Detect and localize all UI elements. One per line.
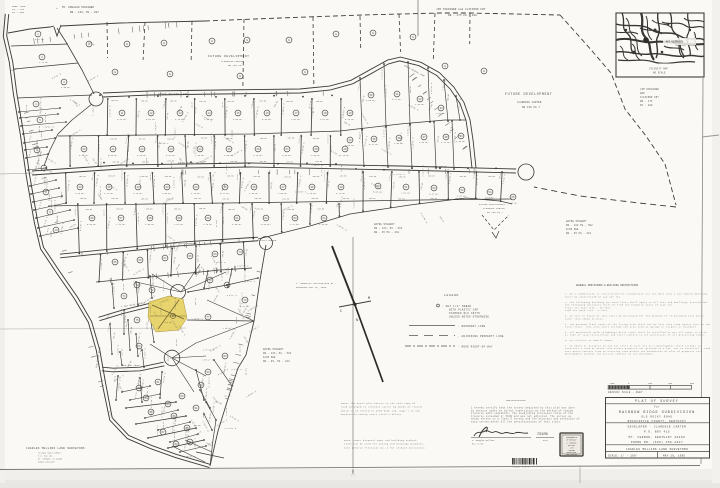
svg-text:lines can be used for zoning a: lines can be used for zoning and drainag… bbox=[344, 443, 425, 446]
svg-text:S 89*54' W: S 89*54' W bbox=[118, 344, 120, 355]
svg-text:69: 69 bbox=[214, 252, 217, 256]
svg-text:142.65: 142.65 bbox=[197, 266, 200, 274]
svg-text:120.00: 120.00 bbox=[50, 230, 53, 238]
svg-text:- SET 1/2" REBAR: - SET 1/2" REBAR bbox=[442, 304, 471, 308]
svg-text:15: 15 bbox=[237, 111, 240, 115]
svg-text:26: 26 bbox=[257, 147, 260, 151]
svg-text:71: 71 bbox=[123, 294, 126, 298]
svg-text:PG - 200: PG - 200 bbox=[640, 104, 653, 107]
svg-text:S 30*42' E: S 30*42' E bbox=[174, 297, 177, 309]
svg-text:120.00: 120.00 bbox=[127, 144, 130, 152]
svg-text:S 89*54' W: S 89*54' W bbox=[237, 264, 249, 267]
svg-text:105.00: 105.00 bbox=[259, 160, 267, 163]
svg-text:ALSO SEE: ALSO SEE bbox=[263, 356, 276, 359]
svg-text:105.00: 105.00 bbox=[398, 197, 406, 200]
svg-text:DB - 95 PG - 218: DB - 95 PG - 218 bbox=[566, 232, 592, 235]
svg-text:105.00: 105.00 bbox=[199, 160, 207, 163]
svg-text:S 8*15' W: S 8*15' W bbox=[100, 259, 103, 270]
svg-text:CITY LIMIT: CITY LIMIT bbox=[676, 45, 686, 47]
svg-text:142.65: 142.65 bbox=[235, 317, 238, 325]
svg-text:S 30*42' E: S 30*42' E bbox=[312, 164, 324, 167]
svg-text:60: 60 bbox=[207, 216, 210, 220]
svg-text:19: 19 bbox=[349, 111, 352, 115]
svg-text:120.00: 120.00 bbox=[222, 102, 224, 108]
svg-text:200: 200 bbox=[668, 382, 673, 385]
svg-text:ALSO SEE: ALSO SEE bbox=[566, 228, 579, 231]
svg-text:0.77 AC.: 0.77 AC. bbox=[35, 38, 45, 41]
svg-text:N 5*18' E: N 5*18' E bbox=[99, 157, 102, 168]
svg-text:105.00: 105.00 bbox=[85, 208, 93, 211]
svg-text:- ROAD RIGHT-OF-WAY: - ROAD RIGHT-OF-WAY bbox=[458, 346, 493, 349]
svg-text:GRAPHIC SCALE - FEET: GRAPHIC SCALE - FEET bbox=[608, 391, 643, 394]
svg-text:105.00: 105.00 bbox=[369, 175, 377, 178]
svg-text:4.29 AC.: 4.29 AC. bbox=[253, 154, 263, 157]
svg-text:MAY 19, 1995: MAY 19, 1995 bbox=[663, 455, 685, 458]
svg-text:S 45*30' E: S 45*30' E bbox=[385, 84, 388, 96]
svg-text:Side Set Back Line - 8 feet: Side Set Back Line - 8 feet bbox=[565, 309, 608, 312]
svg-text:5.63 AC.: 5.63 AC. bbox=[108, 154, 118, 157]
svg-text:4.49 AC.: 4.49 AC. bbox=[319, 223, 329, 226]
svg-text:105.00: 105.00 bbox=[287, 208, 295, 211]
svg-text:NOTE: The exact plat herein i: NOTE: The exact plat herein is the sole … bbox=[341, 402, 416, 405]
svg-text:RAINBOW RIDGE SUBDIVISION: RAINBOW RIDGE SUBDIVISION bbox=[619, 411, 695, 415]
svg-text:4.78 AC.: 4.78 AC. bbox=[133, 192, 143, 195]
svg-text:65: 65 bbox=[114, 260, 117, 264]
svg-text:7/21/95: 7/21/95 bbox=[537, 432, 548, 436]
svg-text:N 12*40' W: N 12*40' W bbox=[98, 140, 101, 152]
svg-text:105.00: 105.00 bbox=[282, 197, 290, 200]
svg-text:3.74 AC.: 3.74 AC. bbox=[336, 192, 346, 195]
svg-text:5.77 AC.: 5.77 AC. bbox=[369, 143, 379, 146]
svg-text:23: 23 bbox=[170, 147, 173, 151]
svg-text:S 30*42' E: S 30*42' E bbox=[163, 204, 165, 214]
svg-text:CLARENCE CARTER: CLARENCE CARTER bbox=[483, 207, 505, 210]
svg-text:DB - 163, PG - 502: DB - 163, PG - 502 bbox=[263, 352, 292, 355]
svg-text:105.00: 105.00 bbox=[230, 160, 238, 163]
svg-text:other than shown on plat.: other than shown on plat. bbox=[565, 317, 605, 320]
svg-text:2.84 AC.: 2.84 AC. bbox=[401, 192, 411, 195]
svg-text:3.88 AC.: 3.88 AC. bbox=[137, 154, 147, 157]
svg-text:N 5*18' E: N 5*18' E bbox=[327, 134, 329, 143]
svg-text:1.30 AC.: 1.30 AC. bbox=[145, 223, 155, 226]
svg-text:105.00: 105.00 bbox=[141, 175, 149, 178]
svg-text:46641 76674: 46641 76674 bbox=[513, 466, 530, 469]
svg-text:5.20 AC.: 5.20 AC. bbox=[262, 118, 272, 121]
svg-text:UNLESS NOTED OTHERWISE: UNLESS NOTED OTHERWISE bbox=[449, 316, 489, 319]
svg-text:G: G bbox=[169, 72, 171, 76]
svg-text:68: 68 bbox=[189, 254, 192, 258]
svg-text:10: 10 bbox=[55, 228, 58, 232]
svg-text:S 45*30' E: S 45*30' E bbox=[109, 105, 112, 117]
svg-text:38: 38 bbox=[445, 135, 448, 139]
svg-text:120.00: 120.00 bbox=[38, 125, 41, 133]
svg-text:63: 63 bbox=[294, 216, 297, 220]
svg-text:47: 47 bbox=[282, 185, 285, 189]
svg-text:46: 46 bbox=[253, 185, 256, 189]
svg-text:5.90 AC.: 5.90 AC. bbox=[373, 191, 383, 194]
svg-text:105.00: 105.00 bbox=[227, 100, 235, 103]
svg-text:84: 84 bbox=[224, 354, 227, 358]
svg-text:165.00: 165.00 bbox=[152, 277, 155, 285]
svg-text:105.00: 105.00 bbox=[110, 137, 118, 140]
svg-text:G: G bbox=[372, 31, 374, 35]
svg-text:S 45*30' E: S 45*30' E bbox=[173, 176, 176, 188]
svg-text:S 89*54' W: S 89*54' W bbox=[408, 125, 410, 136]
svg-text:91: 91 bbox=[195, 406, 198, 410]
svg-text:S 63*05' E: S 63*05' E bbox=[192, 318, 204, 321]
svg-text:N 77*20' E: N 77*20' E bbox=[46, 178, 49, 190]
svg-text:- BOUNDARY LINE: - BOUNDARY LINE bbox=[458, 325, 486, 328]
svg-text:1.79 AC.: 1.79 AC. bbox=[203, 223, 213, 226]
svg-text:P.O. BOX 415: P.O. BOX 415 bbox=[644, 431, 670, 434]
svg-text:G: G bbox=[114, 70, 116, 74]
svg-text:1.29 AC.: 1.29 AC. bbox=[307, 192, 317, 195]
svg-text:DB 139 PG 7: DB 139 PG 7 bbox=[522, 106, 540, 109]
svg-text:N 77*20' E: N 77*20' E bbox=[324, 170, 326, 180]
svg-text:208.75: 208.75 bbox=[197, 254, 200, 262]
svg-text:35: 35 bbox=[373, 137, 376, 141]
svg-text:3.80 AC.: 3.80 AC. bbox=[366, 99, 376, 102]
svg-text:S 89*54' W: S 89*54' W bbox=[422, 164, 425, 176]
svg-text:165.00: 165.00 bbox=[409, 85, 412, 93]
svg-text:N 12*40' W: N 12*40' W bbox=[382, 68, 384, 79]
svg-text:WAYNE STEWART: WAYNE STEWART bbox=[566, 220, 587, 223]
svg-text:1.52 AC.: 1.52 AC. bbox=[291, 118, 301, 121]
svg-text:N 12*40' W: N 12*40' W bbox=[239, 344, 242, 356]
svg-text:N 5*18' E: N 5*18' E bbox=[208, 377, 211, 388]
svg-text:105.00: 105.00 bbox=[165, 175, 173, 178]
svg-text:S 8*15' W: S 8*15' W bbox=[137, 282, 140, 293]
svg-text:G: G bbox=[246, 38, 248, 42]
svg-text:105.00: 105.00 bbox=[287, 137, 295, 140]
svg-text:105.00: 105.00 bbox=[254, 197, 262, 200]
svg-text:1.71 AC.: 1.71 AC. bbox=[39, 61, 49, 64]
svg-text:3.86 AC.: 3.86 AC. bbox=[282, 154, 292, 157]
svg-text:DB - 175 PG - 200: DB - 175 PG - 200 bbox=[448, 14, 477, 17]
svg-text:52: 52 bbox=[433, 186, 436, 190]
svg-text:64: 64 bbox=[323, 216, 326, 220]
svg-text:CHARLES MULLINS LAND SURVEYORS: CHARLES MULLINS LAND SURVEYORS bbox=[626, 448, 688, 451]
svg-text:5.59 AC.: 5.59 AC. bbox=[345, 144, 355, 147]
svg-text:N 5*18' E: N 5*18' E bbox=[232, 368, 243, 371]
svg-text:CLIFFORD FRY: CLIFFORD FRY bbox=[640, 96, 659, 99]
svg-text:DB - 163 PG - 502: DB - 163 PG - 502 bbox=[566, 224, 593, 227]
svg-text:S 45*30' E: S 45*30' E bbox=[411, 136, 414, 148]
svg-text:which is of record in Deed Boo: which is of record in Deed Book 139, pag… bbox=[341, 409, 421, 412]
svg-text:59: 59 bbox=[178, 216, 181, 220]
svg-text:N 5*18' E: N 5*18' E bbox=[227, 294, 238, 297]
svg-text:GENERAL PROVISIONS & BUILDING: GENERAL PROVISIONS & BUILDING RESTRICTIO… bbox=[576, 284, 639, 287]
svg-text:ROCKCASTLE COUNTY, KENTUCKY: ROCKCASTLE COUNTY, KENTUCKY bbox=[628, 420, 687, 423]
svg-text:(606) 256-2647: (606) 256-2647 bbox=[38, 461, 56, 464]
svg-text:142.65: 142.65 bbox=[26, 105, 28, 111]
svg-text:G: G bbox=[211, 39, 213, 43]
svg-text:S 30*42' E: S 30*42' E bbox=[184, 455, 196, 458]
svg-text:N 77*20' E: N 77*20' E bbox=[162, 280, 165, 292]
svg-text:4.33 AC.: 4.33 AC. bbox=[456, 140, 466, 143]
svg-text:33: 33 bbox=[440, 106, 443, 110]
svg-text:2.98 AC.: 2.98 AC. bbox=[162, 192, 172, 195]
svg-text:S 63*05' E: S 63*05' E bbox=[166, 353, 169, 365]
svg-text:S 89*54' W: S 89*54' W bbox=[154, 122, 157, 134]
svg-text:S 63*05' E: S 63*05' E bbox=[113, 282, 116, 294]
svg-text:77: 77 bbox=[207, 315, 210, 319]
svg-text:4.30 AC.: 4.30 AC. bbox=[61, 86, 71, 89]
svg-text:2.88 AC.: 2.88 AC. bbox=[419, 141, 429, 144]
svg-text:G: G bbox=[126, 42, 128, 46]
svg-text:S 8*15' W: S 8*15' W bbox=[149, 303, 152, 314]
svg-text:105.00: 105.00 bbox=[166, 197, 174, 200]
svg-text:S 30*42' E: S 30*42' E bbox=[194, 437, 197, 449]
svg-text:72: 72 bbox=[151, 288, 154, 292]
svg-text:105.00: 105.00 bbox=[199, 207, 207, 210]
svg-text:N 77*20' E: N 77*20' E bbox=[153, 175, 156, 187]
svg-text:105.00: 105.00 bbox=[369, 197, 377, 200]
svg-text:N: N bbox=[356, 319, 358, 323]
svg-text:94: 94 bbox=[167, 402, 170, 406]
svg-text:208.75: 208.75 bbox=[150, 174, 152, 180]
svg-text:N 77*20' E: N 77*20' E bbox=[150, 396, 153, 408]
svg-text:N 12*40' W: N 12*40' W bbox=[225, 427, 237, 430]
svg-text:51: 51 bbox=[405, 185, 408, 189]
svg-text:for: for bbox=[654, 406, 660, 409]
svg-text:PLAT OF SURVEY: PLAT OF SURVEY bbox=[635, 400, 679, 404]
svg-text:56: 56 bbox=[91, 216, 94, 220]
svg-text:M: M bbox=[368, 297, 370, 301]
svg-text:NOTE: Sewer disposal maps and: NOTE: Sewer disposal maps and building s… bbox=[344, 439, 417, 442]
svg-text:3.92 AC.: 3.92 AC. bbox=[166, 154, 176, 157]
svg-text:C: C bbox=[340, 310, 342, 314]
svg-text:S 30*42' E: S 30*42' E bbox=[430, 82, 433, 94]
svg-text:54: 54 bbox=[489, 190, 492, 194]
svg-text:shall be constructed on any on: shall be constructed on any one lot. bbox=[565, 295, 622, 298]
svg-text:61: 61 bbox=[236, 216, 239, 220]
svg-text:105.00: 105.00 bbox=[430, 197, 438, 200]
svg-text:WAYNE STEWART: WAYNE STEWART bbox=[374, 223, 395, 226]
svg-text:S 63*05' E: S 63*05' E bbox=[225, 403, 228, 415]
svg-text:G: G bbox=[239, 74, 241, 78]
svg-text:LEGEND: LEGEND bbox=[444, 294, 459, 297]
svg-text:105.00: 105.00 bbox=[112, 160, 120, 163]
svg-text:N 5*18' E: N 5*18' E bbox=[159, 304, 162, 315]
svg-text:- ADJOINING PROPERTY LINE: - ADJOINING PROPERTY LINE bbox=[458, 335, 504, 338]
svg-text:165.00: 165.00 bbox=[145, 322, 148, 330]
svg-text:142.65: 142.65 bbox=[340, 164, 343, 172]
svg-text:16: 16 bbox=[266, 111, 269, 115]
svg-text:24: 24 bbox=[199, 147, 202, 151]
svg-text:75: 75 bbox=[136, 318, 139, 322]
svg-text:105.00: 105.00 bbox=[455, 197, 463, 200]
svg-text:208.75: 208.75 bbox=[215, 220, 218, 228]
svg-text:105.00: 105.00 bbox=[428, 175, 436, 178]
svg-text:105.00: 105.00 bbox=[313, 137, 321, 140]
svg-text:CLARENCE CARTER: CLARENCE CARTER bbox=[517, 101, 542, 104]
svg-text:12: 12 bbox=[150, 111, 153, 115]
svg-text:28: 28 bbox=[315, 147, 318, 151]
svg-text:N 12*40' W: N 12*40' W bbox=[185, 426, 188, 438]
svg-text:CLARENCE CARTER: CLARENCE CARTER bbox=[221, 60, 244, 63]
svg-text:MT. VERNON: MT. VERNON bbox=[666, 40, 683, 44]
svg-text:Date: Date bbox=[543, 439, 549, 442]
svg-text:31: 31 bbox=[396, 92, 399, 96]
svg-text:22: 22 bbox=[141, 147, 144, 151]
svg-text:83: 83 bbox=[200, 383, 203, 387]
svg-text:S 30*42' E: S 30*42' E bbox=[122, 170, 124, 180]
svg-text:2.74 AC.: 2.74 AC. bbox=[104, 192, 114, 195]
svg-text:105.00: 105.00 bbox=[284, 175, 292, 178]
svg-text:4.73 AC.: 4.73 AC. bbox=[191, 192, 201, 195]
svg-text:208.75: 208.75 bbox=[194, 297, 197, 305]
svg-text:2775: 2775 bbox=[569, 448, 573, 450]
svg-text:S 89*54' W: S 89*54' W bbox=[326, 168, 329, 180]
svg-text:105.00: 105.00 bbox=[201, 137, 209, 140]
svg-text:S 63*05' E: S 63*05' E bbox=[239, 299, 242, 311]
svg-text:3.44 AC.: 3.44 AC. bbox=[117, 118, 127, 121]
svg-text:105.00: 105.00 bbox=[80, 197, 88, 200]
svg-text:48: 48 bbox=[311, 185, 314, 189]
svg-text:120.00: 120.00 bbox=[104, 210, 106, 216]
svg-text:Rockcastle County Court Clerk': Rockcastle County Court Clerk's Office. bbox=[341, 413, 403, 416]
svg-text:100: 100 bbox=[648, 382, 653, 385]
svg-text:105.00: 105.00 bbox=[316, 100, 324, 103]
svg-text:DB - 95, PG - 218: DB - 95, PG - 218 bbox=[263, 360, 290, 363]
svg-text:14: 14 bbox=[208, 111, 211, 115]
svg-text:43: 43 bbox=[166, 185, 169, 189]
svg-text:N 12*40' W: N 12*40' W bbox=[363, 177, 366, 189]
svg-text:105.00: 105.00 bbox=[194, 197, 202, 200]
svg-text:2.43 AC.: 2.43 AC. bbox=[340, 154, 350, 157]
svg-text:5.11 AC.: 5.11 AC. bbox=[220, 192, 230, 195]
svg-text:5.66 AC.: 5.66 AC. bbox=[87, 223, 97, 226]
svg-text:53: 53 bbox=[461, 188, 464, 192]
svg-text:CERTIFICATION: CERTIFICATION bbox=[506, 399, 526, 402]
svg-text:JIM STEIGNER and CLIFFORD FRY: JIM STEIGNER and CLIFFORD FRY bbox=[436, 7, 486, 11]
svg-text:105.00: 105.00 bbox=[141, 197, 149, 200]
svg-text:S 89*54' W: S 89*54' W bbox=[174, 429, 176, 440]
svg-text:G: G bbox=[288, 38, 290, 42]
svg-text:90: 90 bbox=[207, 370, 210, 374]
svg-text:G: G bbox=[335, 32, 337, 36]
svg-text:S 30*42' E: S 30*42' E bbox=[211, 133, 213, 143]
svg-text:G: G bbox=[483, 69, 485, 73]
svg-text:120.00: 120.00 bbox=[175, 339, 178, 347]
svg-text:142.65: 142.65 bbox=[193, 146, 196, 154]
svg-text:6. No trailers or mobile home: 6. No trailers or mobile homes. bbox=[565, 339, 614, 342]
svg-text:105.00: 105.00 bbox=[340, 175, 348, 178]
svg-text:81: 81 bbox=[157, 380, 160, 384]
svg-text:CHARLES MULLINS LAND SURVEYORS: CHARLES MULLINS LAND SURVEYORS bbox=[26, 447, 85, 450]
svg-text:G: G bbox=[412, 35, 414, 39]
svg-text:89: 89 bbox=[175, 442, 178, 446]
svg-text:DB - 146, PG - 297: DB - 146, PG - 297 bbox=[70, 11, 99, 14]
svg-text:208.75: 208.75 bbox=[273, 143, 276, 151]
svg-text:208.75: 208.75 bbox=[222, 216, 225, 224]
svg-text:142.65: 142.65 bbox=[224, 394, 232, 397]
svg-text:105.00: 105.00 bbox=[167, 160, 175, 163]
svg-text:18: 18 bbox=[324, 111, 327, 115]
svg-text:N 5*18' E: N 5*18' E bbox=[170, 357, 181, 360]
svg-text:120.00: 120.00 bbox=[226, 268, 229, 276]
svg-text:66: 66 bbox=[139, 258, 142, 262]
svg-text:105.00: 105.00 bbox=[142, 160, 150, 163]
svg-text:3.85 AC.: 3.85 AC. bbox=[261, 223, 271, 226]
svg-text:105.00: 105.00 bbox=[228, 208, 236, 211]
svg-text:at time of said installation a: at time of said installation and shall c… bbox=[565, 334, 706, 337]
svg-text:2.19 AC.: 2.19 AC. bbox=[75, 192, 85, 195]
svg-text:67: 67 bbox=[164, 256, 167, 260]
svg-text:105.00: 105.00 bbox=[253, 175, 261, 178]
svg-text:SILVER MIST CORNER: SILVER MIST CORNER bbox=[252, 239, 277, 242]
svg-text:105.00: 105.00 bbox=[317, 208, 325, 211]
svg-text:105.00: 105.00 bbox=[485, 197, 493, 200]
svg-text:105.00: 105.00 bbox=[286, 100, 294, 103]
svg-text:105.00: 105.00 bbox=[227, 175, 235, 178]
svg-text:G: G bbox=[163, 41, 165, 45]
svg-text:3.22 AC.: 3.22 AC. bbox=[392, 98, 402, 101]
svg-text:RLS #2775: RLS #2775 bbox=[472, 443, 484, 446]
svg-text:57: 57 bbox=[120, 216, 123, 220]
svg-text:3.59 AC.: 3.59 AC. bbox=[233, 118, 243, 121]
svg-text:105.00: 105.00 bbox=[311, 197, 319, 200]
svg-text:105.00: 105.00 bbox=[111, 99, 119, 102]
svg-text:62: 62 bbox=[265, 216, 268, 220]
svg-text:DB 139 PG 7: DB 139 PG 7 bbox=[487, 211, 503, 214]
svg-text:S 30*42' E: S 30*42' E bbox=[44, 112, 47, 124]
svg-text:105.00: 105.00 bbox=[488, 175, 496, 178]
svg-text:said survey meets all the spec: said survey meets all the specifications… bbox=[471, 421, 562, 424]
svg-text:39: 39 bbox=[460, 134, 463, 138]
svg-text:142.65: 142.65 bbox=[237, 174, 239, 180]
svg-text:70: 70 bbox=[239, 250, 242, 254]
svg-text:17: 17 bbox=[295, 111, 298, 115]
svg-text:21: 21 bbox=[112, 147, 115, 151]
svg-text:-100: -100 bbox=[609, 382, 615, 385]
svg-text:11: 11 bbox=[121, 111, 124, 115]
svg-text:40: 40 bbox=[79, 185, 82, 189]
svg-text:105.00: 105.00 bbox=[256, 208, 264, 211]
svg-text:SCALE: 1" - 100': SCALE: 1" - 100' bbox=[608, 454, 638, 458]
svg-text:44: 44 bbox=[195, 185, 198, 189]
svg-text:MT. VERNON, KENTUCKY 40456: MT. VERNON, KENTUCKY 40456 bbox=[629, 436, 686, 439]
svg-text:land conveyed to Clarence Cart: land conveyed to Clarence Carter by deed… bbox=[341, 406, 422, 409]
svg-text:34: 34 bbox=[349, 138, 352, 142]
svg-text:25: 25 bbox=[228, 147, 231, 151]
svg-text:first floor. This area shall e: first floor. This area shall exclude the… bbox=[565, 326, 698, 329]
svg-text:N 77*20' E: N 77*20' E bbox=[121, 306, 123, 316]
svg-text:DB - 163, PG - 502: DB - 163, PG - 502 bbox=[374, 227, 403, 230]
svg-text:N 5*18' E: N 5*18' E bbox=[352, 197, 355, 208]
svg-text:105.00: 105.00 bbox=[111, 197, 119, 200]
svg-text:5.52 AC.: 5.52 AC. bbox=[146, 118, 156, 121]
svg-text:1.40 AC.: 1.40 AC. bbox=[415, 103, 425, 106]
svg-text:105.00: 105.00 bbox=[170, 99, 178, 102]
svg-text:208.75: 208.75 bbox=[163, 422, 165, 428]
svg-text:87: 87 bbox=[162, 430, 165, 434]
svg-text:105.00: 105.00 bbox=[459, 175, 467, 178]
svg-text:WAYNE STEWART: WAYNE STEWART bbox=[263, 348, 284, 351]
svg-text:30: 30 bbox=[370, 93, 373, 97]
svg-text:142.65: 142.65 bbox=[244, 368, 247, 376]
svg-text:PHONE NO. (606) 256-2647: PHONE NO. (606) 256-2647 bbox=[631, 440, 683, 444]
svg-text:LICENSED: LICENSED bbox=[568, 450, 575, 452]
svg-text:105.00: 105.00 bbox=[116, 208, 124, 211]
svg-text:1.92 AC.: 1.92 AC. bbox=[174, 223, 184, 226]
svg-text:JIM STEIGNER: JIM STEIGNER bbox=[640, 88, 659, 91]
svg-text:MT. DOUGLAS STEIGNER: MT. DOUGLAS STEIGNER bbox=[62, 6, 94, 9]
svg-text:55: 55 bbox=[512, 195, 515, 199]
svg-text:1.58 AC.: 1.58 AC. bbox=[278, 192, 288, 195]
svg-text:FUTURE DEVELOPMENT: FUTURE DEVELOPMENT bbox=[208, 55, 249, 58]
